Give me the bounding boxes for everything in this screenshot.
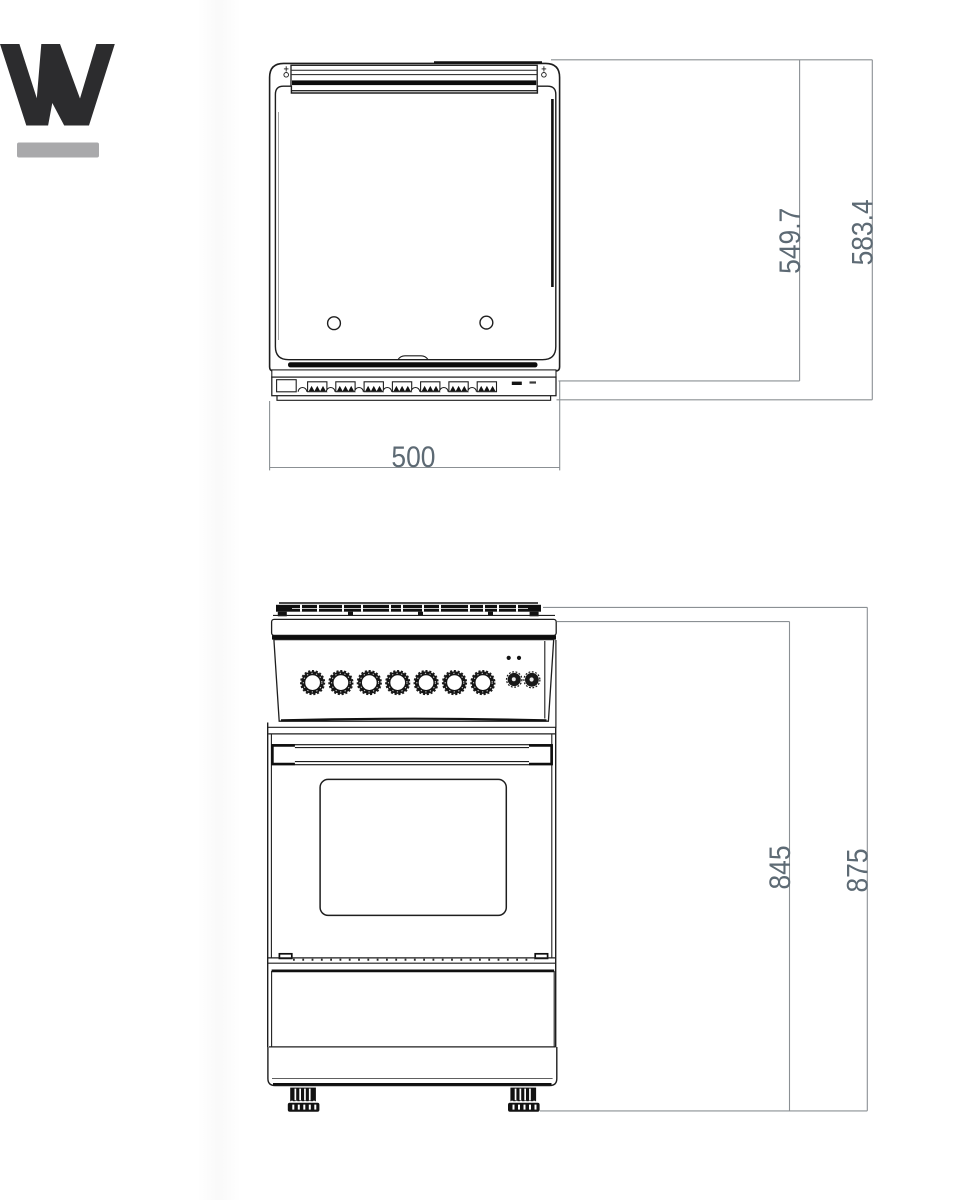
- svg-text:875: 875: [840, 848, 874, 892]
- svg-text:845: 845: [762, 845, 796, 889]
- svg-text:549.7: 549.7: [772, 208, 806, 274]
- svg-text:500: 500: [391, 439, 435, 473]
- svg-text:583.4: 583.4: [845, 199, 879, 265]
